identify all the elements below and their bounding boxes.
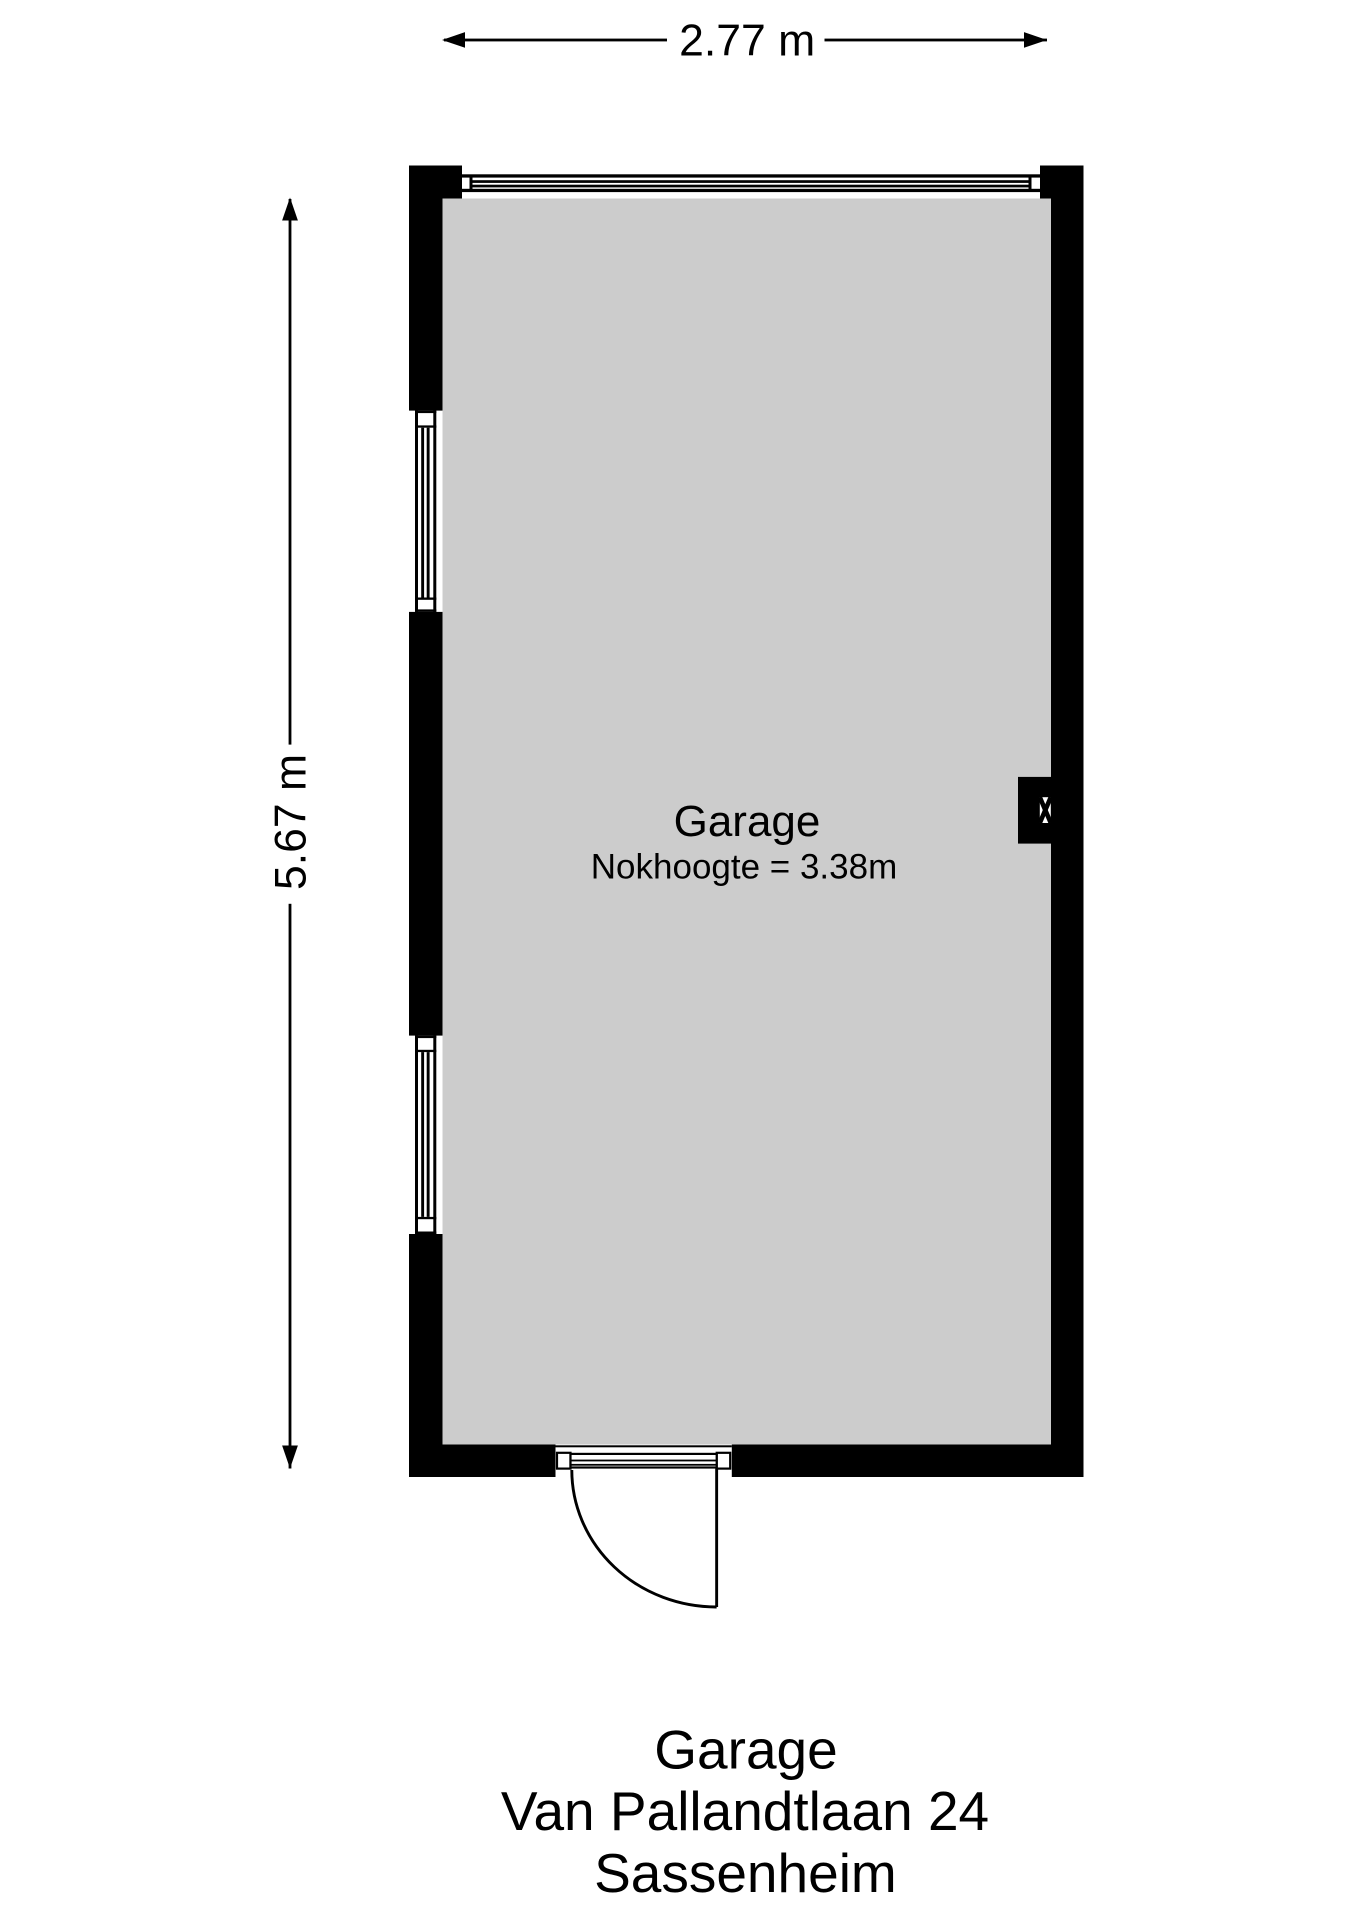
svg-text:Garage: Garage xyxy=(674,797,821,846)
svg-text:Sassenheim: Sassenheim xyxy=(594,1842,897,1904)
svg-text:5.67 m: 5.67 m xyxy=(266,754,315,890)
svg-text:2.77 m: 2.77 m xyxy=(679,17,815,66)
svg-text:Nokhoogte = 3.38m: Nokhoogte = 3.38m xyxy=(591,848,897,887)
svg-text:Van Pallandtlaan 24: Van Pallandtlaan 24 xyxy=(501,1780,989,1842)
svg-text:Garage: Garage xyxy=(654,1719,837,1781)
